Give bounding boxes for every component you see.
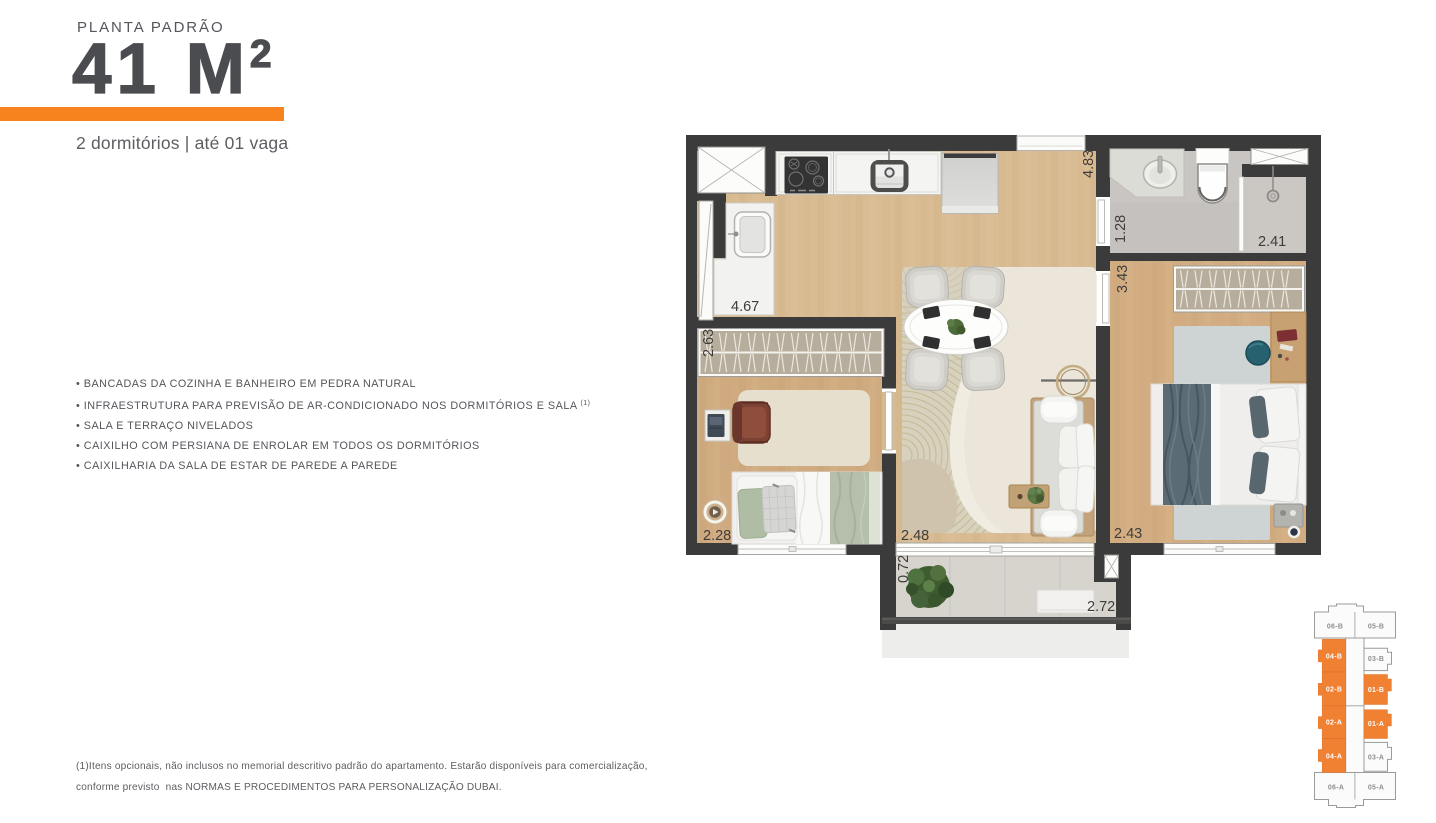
svg-text:01-B: 01-B bbox=[1368, 687, 1384, 694]
svg-text:02-A: 02-A bbox=[1326, 720, 1342, 727]
svg-text:05-B: 05-B bbox=[1368, 624, 1384, 631]
svg-text:03-B: 03-B bbox=[1368, 656, 1384, 663]
svg-text:3.43: 3.43 bbox=[1115, 265, 1131, 293]
svg-text:03-A: 03-A bbox=[1368, 755, 1384, 762]
svg-text:2.28: 2.28 bbox=[703, 528, 731, 544]
svg-text:04-B: 04-B bbox=[1326, 654, 1342, 661]
svg-text:01-A: 01-A bbox=[1368, 721, 1384, 728]
svg-text:0.72: 0.72 bbox=[896, 555, 912, 583]
svg-text:04-A: 04-A bbox=[1326, 754, 1342, 761]
svg-text:4.83: 4.83 bbox=[1081, 150, 1097, 178]
svg-text:2.63: 2.63 bbox=[701, 329, 717, 357]
svg-text:2.41: 2.41 bbox=[1258, 234, 1286, 250]
svg-text:2.48: 2.48 bbox=[901, 528, 929, 544]
svg-text:02-B: 02-B bbox=[1326, 687, 1342, 694]
svg-text:2.43: 2.43 bbox=[1114, 526, 1142, 542]
svg-text:1.28: 1.28 bbox=[1113, 215, 1129, 243]
svg-text:06-B: 06-B bbox=[1327, 624, 1343, 631]
svg-text:4.67: 4.67 bbox=[731, 299, 759, 315]
svg-text:06-A: 06-A bbox=[1328, 785, 1344, 792]
svg-text:2.72: 2.72 bbox=[1087, 599, 1115, 615]
svg-text:05-A: 05-A bbox=[1368, 785, 1384, 792]
